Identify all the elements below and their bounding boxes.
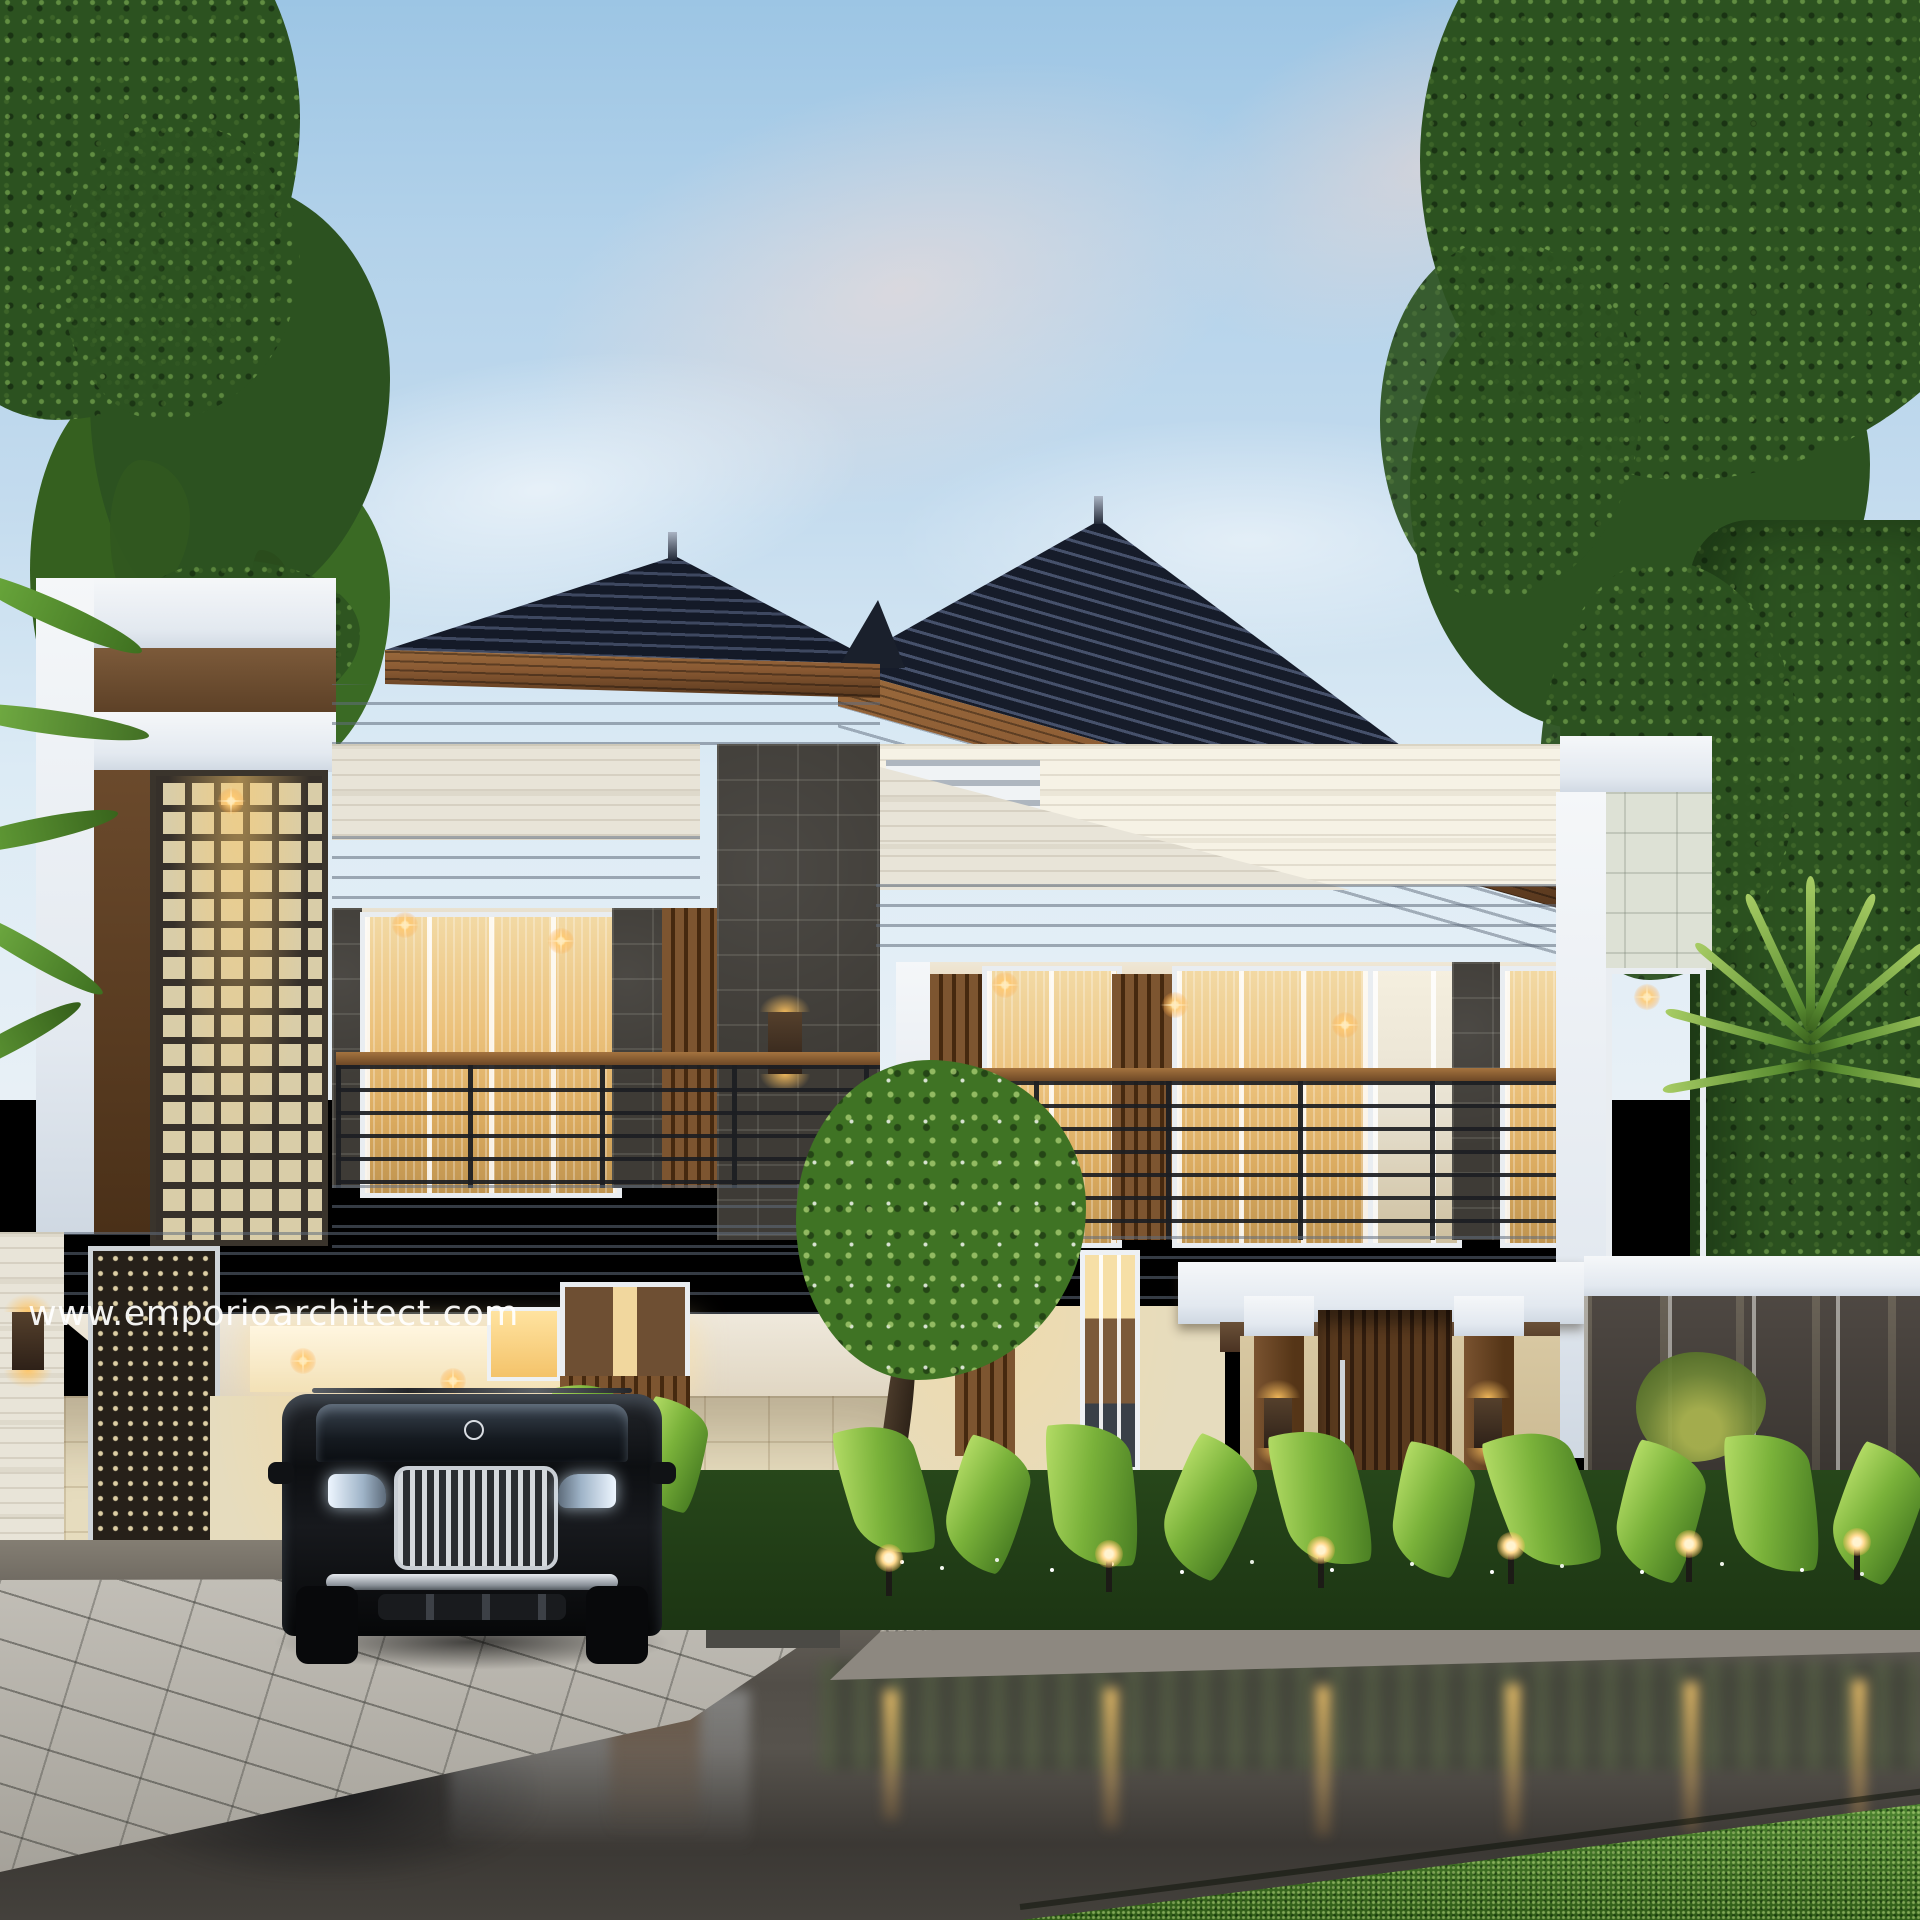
roof-finial-left	[668, 532, 677, 560]
reflection-garden-light-5	[1684, 1682, 1698, 1832]
downlight-center-balcony-2	[1162, 992, 1188, 1018]
suv-lower-intake	[378, 1594, 566, 1620]
vehicle-suv	[282, 1378, 662, 1678]
garden-light-3	[1318, 1552, 1324, 1588]
boundary-wall-cap	[1584, 1256, 1920, 1298]
center-balcony-fascia	[876, 884, 1572, 962]
suv-grille	[394, 1466, 558, 1570]
suv-headlight-left	[328, 1474, 386, 1508]
watermark-text: www.emporioarchitect.com	[28, 1294, 519, 1334]
suv-headlight-right	[558, 1474, 616, 1508]
upper-wall-travertine-left	[332, 744, 700, 840]
suv-mirror-left	[268, 1462, 294, 1484]
architectural-render-canvas: www.emporioarchitect.com	[0, 0, 1920, 1920]
downlight-center-balcony-3	[1332, 1012, 1358, 1038]
fan-palm	[1700, 880, 1920, 1200]
suv-roof-rails	[312, 1388, 632, 1393]
left-balcony-railing	[336, 1052, 880, 1188]
left-railing-handrail	[336, 1052, 880, 1065]
downlight-left-balcony-2	[548, 928, 574, 954]
right-wing-parapet	[1560, 736, 1712, 794]
downlight-carport-2	[290, 1348, 316, 1374]
palm-frond	[1806, 876, 1815, 1026]
entry-column-right-cap	[1454, 1296, 1524, 1336]
roof-valley	[838, 600, 905, 668]
downlight-left-balcony-1	[392, 912, 418, 938]
reflection-garden-light-1	[884, 1690, 898, 1820]
downlight-center-balcony-1	[992, 972, 1018, 998]
downlight-breeze-screen	[218, 788, 244, 814]
palm-frond-left	[0, 696, 151, 748]
garden-light-5	[1686, 1546, 1692, 1582]
palm-frond	[1810, 1060, 1920, 1095]
reflection-garden-light-3	[1316, 1686, 1330, 1836]
suv-wheel-right	[586, 1586, 648, 1664]
palm-fronds-left	[0, 560, 180, 1120]
reflection-plants-band	[820, 1660, 1920, 1770]
left-railing-bars	[336, 1065, 880, 1188]
palm-frond-left	[0, 994, 86, 1089]
reflection-garden-light-6	[1852, 1680, 1866, 1830]
left-balcony-awning	[332, 836, 700, 910]
suv-wheel-left	[296, 1586, 358, 1664]
downlight-right-window	[1634, 984, 1660, 1010]
carport-door-transom	[560, 1282, 690, 1386]
garden-light-6	[1854, 1544, 1860, 1580]
suv-mirror-right	[650, 1462, 676, 1484]
palm-frond-left	[0, 899, 108, 1003]
reflection-garden-light-2	[1104, 1688, 1118, 1828]
entry-column-left-cap	[1244, 1296, 1314, 1336]
garden-light-2	[1106, 1556, 1112, 1592]
reflection-garden-light-4	[1506, 1684, 1520, 1834]
roof-left-plane	[385, 556, 880, 664]
suv-hood-star-emblem	[464, 1420, 484, 1440]
suv-bumper-chrome	[326, 1574, 618, 1590]
palm-frond-left	[0, 802, 121, 863]
roof-finial-main	[1094, 496, 1103, 524]
palm-frond-left	[0, 562, 147, 663]
garden-light-4	[1508, 1548, 1514, 1584]
garden-light-1	[886, 1560, 892, 1596]
